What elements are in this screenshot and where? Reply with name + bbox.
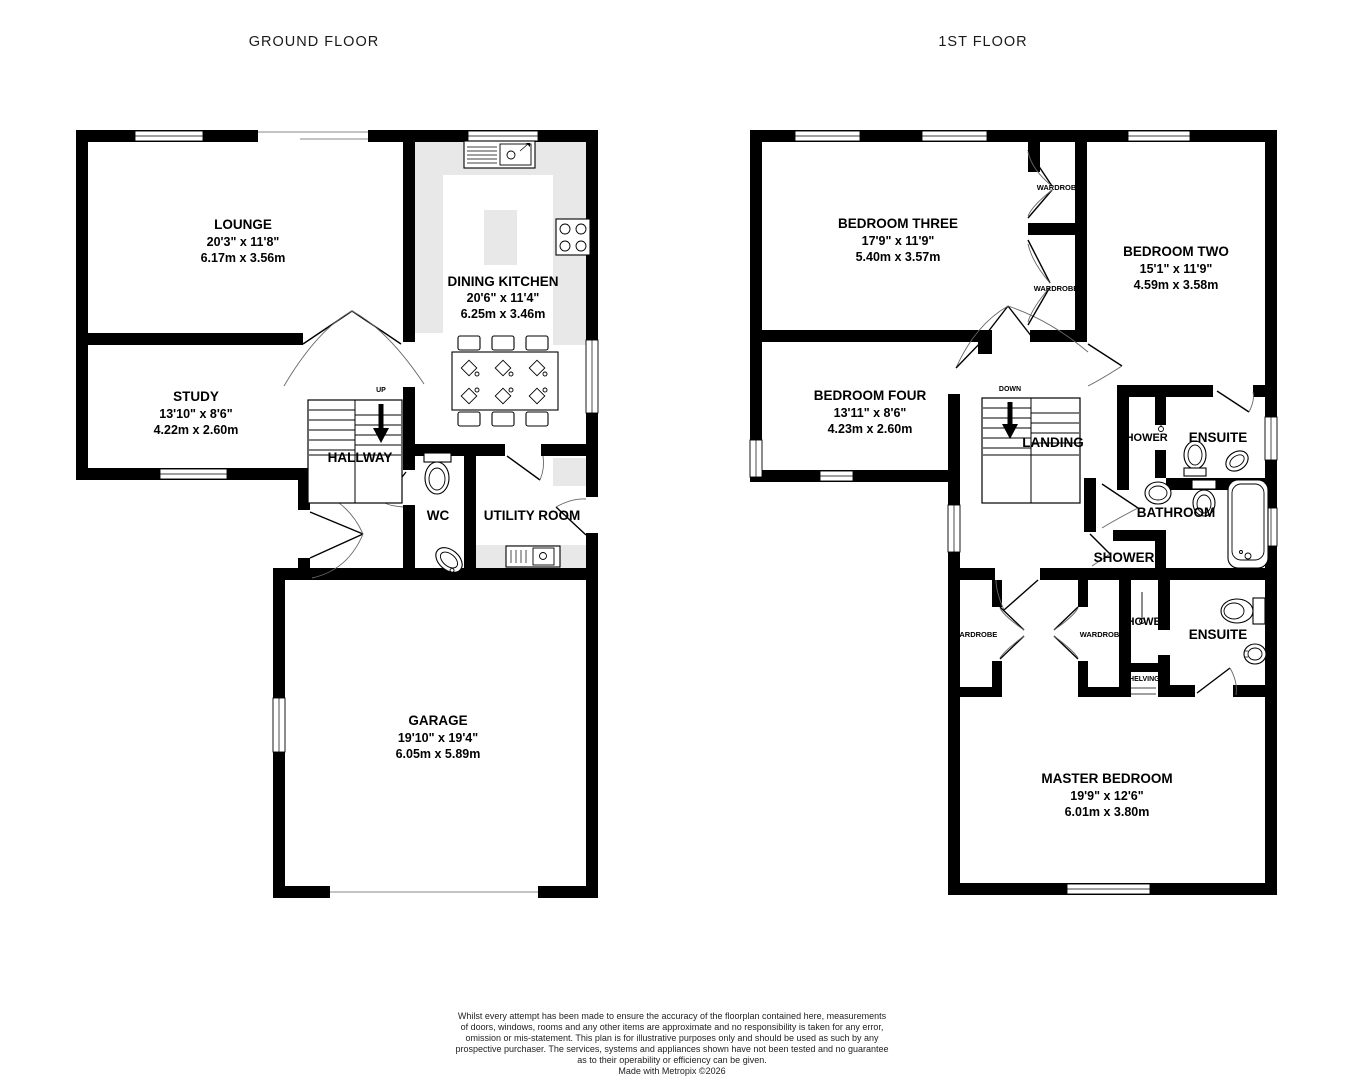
study-dims-metric: 4.22m x 2.60m — [154, 423, 239, 437]
stove-icon — [556, 219, 590, 255]
floorplan-svg: GROUND FLOOR 1ST FLOOR — [0, 0, 1351, 1080]
kitchen-window — [468, 131, 538, 141]
kitchen-sink-icon — [464, 141, 535, 168]
lounge-label: LOUNGE — [214, 217, 272, 232]
disclaimer-line-5: as to their operability or efficiency ca… — [577, 1055, 766, 1065]
wardrobe-label-1: WARDROBE — [1037, 183, 1082, 192]
study-dims-imperial: 13'10" x 8'6" — [159, 407, 232, 421]
hallway-label: HALLWAY — [328, 450, 393, 465]
bathroom-basin-icon — [1145, 482, 1171, 504]
ensuite-label: ENSUITE — [1189, 430, 1248, 445]
stairs-up-label: UP — [376, 387, 386, 394]
bedroom-three-window — [795, 131, 860, 141]
wc-toilet-icon — [424, 453, 451, 494]
lounge-dims-imperial: 20'3" x 11'8" — [207, 235, 280, 249]
disclaimer: Whilst every attempt has been made to en… — [455, 1011, 888, 1076]
bedroom-four-side-window — [750, 440, 762, 477]
utility-room-label: UTILITY ROOM — [484, 508, 581, 523]
garage-label: GARAGE — [408, 713, 467, 728]
dining-chair — [492, 336, 514, 350]
wardrobe-doors-master-right — [1054, 607, 1078, 659]
wardrobe-label-2: WARDROBE — [1034, 284, 1079, 293]
master-wardrobe-label-2: WARDROBE — [1080, 630, 1125, 639]
garage-dims-metric: 6.05m x 5.89m — [396, 747, 481, 761]
bedroom-three-label: BEDROOM THREE — [838, 216, 958, 231]
master-bedroom-dims-metric: 6.01m x 3.80m — [1065, 805, 1150, 819]
master-bedroom-door — [996, 580, 1038, 610]
dining-chair — [458, 412, 480, 426]
master-ensuite-basin-icon — [1244, 644, 1266, 664]
study-window — [160, 469, 227, 479]
bedroom-two-label: BEDROOM TWO — [1123, 244, 1229, 259]
stairs-down-label: DOWN — [999, 386, 1021, 393]
shelving-label: SHELVING — [1124, 676, 1160, 683]
utility-sink-icon — [506, 546, 560, 567]
lounge-dims-metric: 6.17m x 3.56m — [201, 251, 286, 265]
garage-dims-imperial: 19'10" x 19'4" — [398, 731, 478, 745]
floorplan-canvas: GROUND FLOOR 1ST FLOOR — [0, 0, 1351, 1080]
dining-table — [452, 336, 558, 426]
bathtub-icon — [1228, 480, 1268, 568]
wc-label: WC — [427, 508, 450, 523]
master-bedroom-dims-imperial: 19'9" x 12'6" — [1070, 789, 1143, 803]
bedroom-two-dims-imperial: 15'1" x 11'9" — [1140, 262, 1213, 276]
bedroom-two-door — [1088, 344, 1122, 386]
bedroom-two-ensuite-door — [1217, 391, 1254, 412]
master-ensuite-label: ENSUITE — [1189, 627, 1248, 642]
first-floor-stairs — [982, 398, 1080, 503]
master-bedroom-window — [1067, 884, 1150, 894]
disclaimer-line-3: omission or mis-statement. This plan is … — [465, 1033, 879, 1043]
ground-floor-plan: LOUNGE 20'3" x 11'8" 6.17m x 3.56m STUDY… — [76, 130, 598, 898]
kitchen-side-window — [586, 340, 598, 413]
bedroom-four-label: BEDROOM FOUR — [814, 388, 927, 403]
bedroom-three-dims-metric: 5.40m x 3.57m — [856, 250, 941, 264]
disclaimer-line-1: Whilst every attempt has been made to en… — [458, 1011, 887, 1021]
master-bedroom-label: MASTER BEDROOM — [1041, 771, 1172, 786]
bathroom-door — [1102, 484, 1138, 528]
dining-kitchen-dims-imperial: 20'6" x 11'4" — [467, 291, 540, 305]
dining-kitchen-dims-metric: 6.25m x 3.46m — [461, 307, 546, 321]
wardrobe-doors-bedroom-three-2 — [1028, 240, 1050, 325]
landing-label: LANDING — [1022, 435, 1084, 450]
dining-kitchen-label: DINING KITCHEN — [448, 274, 559, 289]
wardrobe-doors-master-left — [1000, 607, 1024, 659]
ground-floor-title: GROUND FLOOR — [249, 34, 379, 50]
disclaimer-line-4: prospective purchaser. The services, sys… — [455, 1044, 888, 1054]
bedroom-two-window — [1128, 131, 1190, 141]
bedroom-four-window — [820, 471, 853, 481]
garage-window — [273, 698, 285, 752]
bathroom-label: BATHROOM — [1137, 505, 1216, 520]
bedroom-three-dims-imperial: 17'9" x 11'9" — [862, 234, 935, 248]
bedroom-three-window-2 — [922, 131, 987, 141]
bedroom-four-dims-metric: 4.23m x 2.60m — [828, 422, 913, 436]
landing-window — [948, 505, 960, 552]
master-wardrobe-label-1: WARDROBE — [953, 630, 998, 639]
first-floor-title: 1ST FLOOR — [938, 34, 1027, 50]
master-shower-label: SHOWER — [1119, 616, 1169, 628]
bedroom-four-dims-imperial: 13'11" x 8'6" — [834, 406, 907, 420]
study-label: STUDY — [173, 389, 219, 404]
dining-chair — [458, 336, 480, 350]
disclaimer-line-2: of doors, windows, rooms and any other i… — [461, 1022, 884, 1032]
ensuite-toilet-icon — [1184, 441, 1206, 476]
dining-chair — [526, 412, 548, 426]
dining-chair — [526, 336, 548, 350]
ensuite-window — [1265, 417, 1277, 460]
bedroom-two-dims-metric: 4.59m x 3.58m — [1134, 278, 1219, 292]
disclaimer-credit: Made with Metropix ©2026 — [618, 1066, 725, 1076]
dining-chair — [492, 412, 514, 426]
utility-door — [507, 456, 544, 480]
master-ensuite-toilet-icon — [1221, 598, 1265, 624]
first-floor-plan: BEDROOM THREE 17'9" x 11'9" 5.40m x 3.57… — [750, 130, 1277, 895]
ensuite-basin-icon — [1222, 447, 1252, 476]
lounge-window — [135, 131, 203, 141]
shower-room-label: SHOWER — [1094, 550, 1155, 565]
ensuite-shower-label: SHOWER — [1118, 432, 1168, 444]
